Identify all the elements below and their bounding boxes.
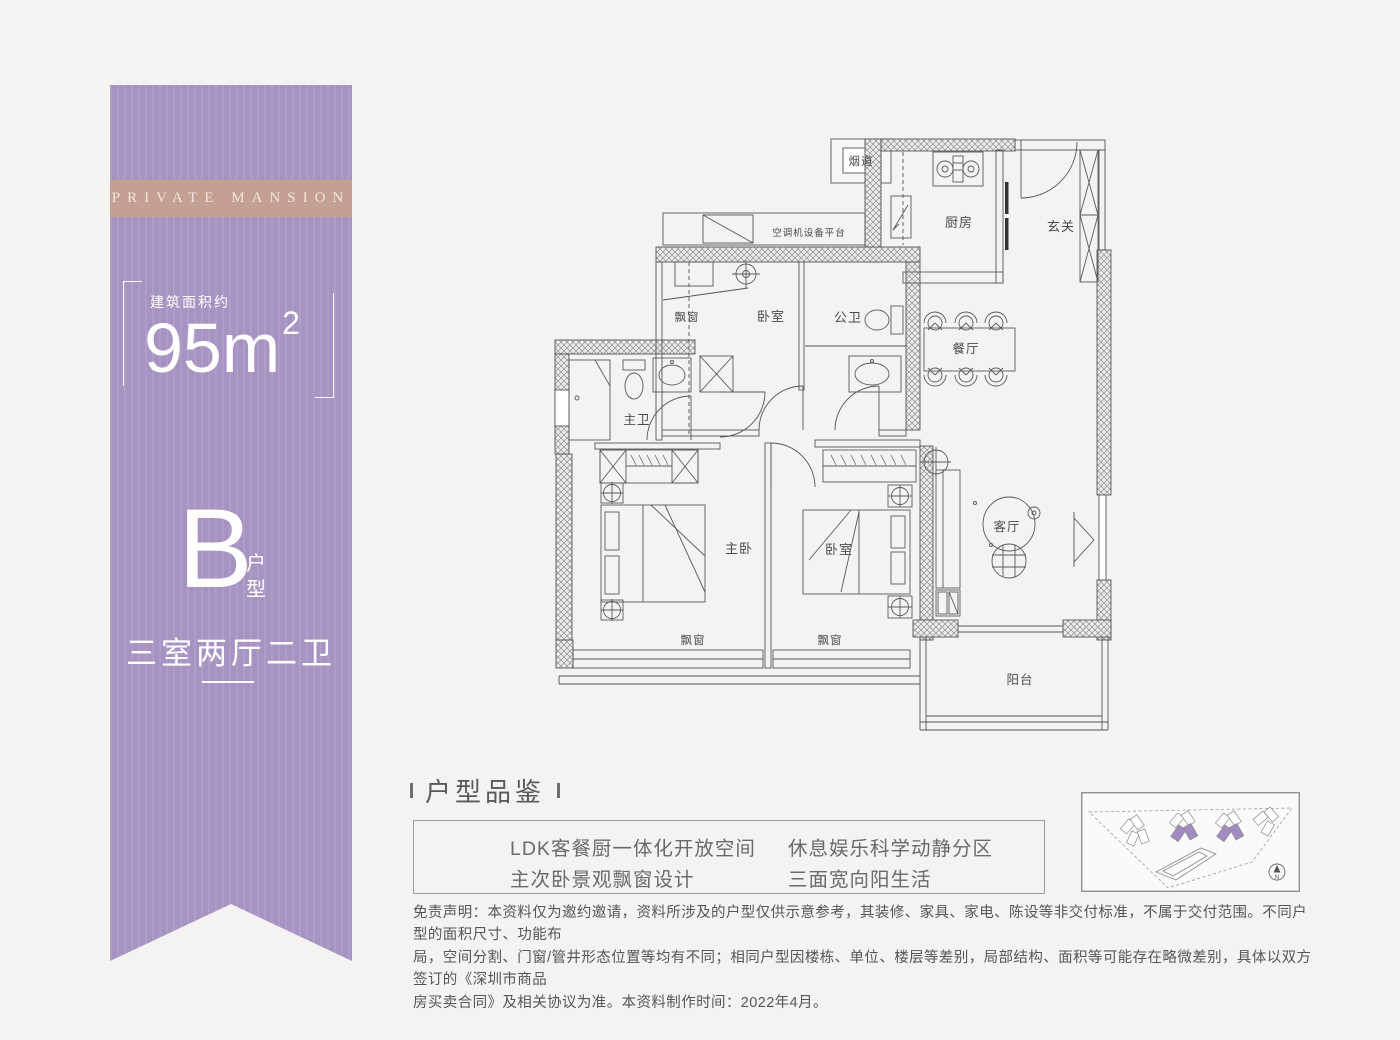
nightstand-icon xyxy=(888,596,912,618)
disclaimer-line-2: 局，空间分割、门窗/管井形态位置等均有不同；相同户型因楼栋、单位、楼层等差别，局… xyxy=(413,947,1318,992)
bay-window-bands xyxy=(559,650,920,684)
toilet2-icon xyxy=(623,360,645,399)
label-bedroom-upper: 卧室 xyxy=(757,309,785,324)
poster: PRIVATE MANSION 建筑面积约 95m2 B 户 型 三室两厅二卫 xyxy=(0,0,1400,1040)
north-label: N xyxy=(1275,875,1279,881)
label-guest-bath: 公卫 xyxy=(834,310,862,325)
label-ac-platform: 空调机设备平台 xyxy=(772,227,846,239)
bedroom2-door xyxy=(771,443,815,487)
window-casement-icon xyxy=(1074,512,1094,567)
unit-type-letter: B xyxy=(178,493,253,605)
label-bay-upper: 飘窗 xyxy=(675,310,700,324)
closet-icon xyxy=(700,356,733,392)
tv-cabinet-icon xyxy=(936,470,960,616)
feature-2: 休息娱乐科学动静分区 xyxy=(788,832,993,861)
bedroom2-wardrobe-icon xyxy=(823,450,916,482)
bracket-topleft-icon xyxy=(123,281,142,386)
nightstand-icon xyxy=(888,485,912,507)
title-tick-left xyxy=(410,783,413,798)
floorplan-drawing: 烟道 空调机设备平台 厨房 玄关 飘窗 卧室 公卫 餐厅 主卫 主卧 卧室 客厅… xyxy=(530,85,1195,750)
label-foyer: 玄关 xyxy=(1047,219,1075,234)
section-header: 户型品鉴 xyxy=(410,772,560,809)
disclaimer-line-3: 房买卖合同》及相关协议为准。本资料制作时间：2022年4月。 xyxy=(413,992,1318,1014)
brand-text: PRIVATE MANSION xyxy=(112,190,351,207)
area-value: 95m2 xyxy=(144,307,300,383)
banner-divider xyxy=(202,681,254,683)
kitchen-sink-icon xyxy=(891,196,911,238)
basin2-icon xyxy=(653,358,691,392)
label-master-bath: 主卫 xyxy=(623,413,650,427)
area-superscript: 2 xyxy=(282,305,300,341)
foyer-wardrobe-icon xyxy=(1080,150,1098,282)
shower-icon xyxy=(569,360,610,440)
title-tick-right xyxy=(557,783,560,798)
label-kitchen: 厨房 xyxy=(945,215,973,230)
toilet-icon xyxy=(865,306,903,334)
entry-door xyxy=(1021,140,1077,198)
bracket-bottomright-icon xyxy=(315,293,334,398)
label-balcony: 阳台 xyxy=(1006,672,1033,687)
disclaimer-line-1: 免责声明：本资料仅为邀约邀请，资料所涉及的户型仅供示意参考，其装修、家具、家电、… xyxy=(413,902,1318,947)
feature-3: 主次卧景观飘窗设计 xyxy=(510,863,695,892)
room-count-text: 三室两厅二卫 xyxy=(110,628,352,673)
unit-type-char2: 型 xyxy=(246,577,266,603)
label-bedroom2: 卧室 xyxy=(825,542,853,557)
nightstand-icon xyxy=(601,482,623,504)
master-bath-door xyxy=(647,396,691,440)
stove-icon xyxy=(933,152,983,186)
label-flue: 烟道 xyxy=(849,154,874,168)
master-wardrobe-icon xyxy=(600,450,698,483)
features-box: LDK客餐厨一体化开放空间 休息娱乐科学动静分区 主次卧景观飘窗设计 三面宽向阳… xyxy=(413,820,1045,894)
chairs-top xyxy=(924,312,1007,330)
bedroom-upper-door xyxy=(759,386,803,430)
site-map: N xyxy=(1081,792,1300,892)
label-bay-bedroom2: 飘窗 xyxy=(818,633,843,647)
label-dining: 餐厅 xyxy=(952,341,979,356)
bedroom2-bed-icon xyxy=(803,510,910,594)
feature-4: 三面宽向阳生活 xyxy=(788,863,932,892)
guest-bath-door xyxy=(835,386,879,430)
bay-seat xyxy=(675,262,713,286)
ribbon-banner: PRIVATE MANSION 建筑面积约 95m2 B 户 型 三室两厅二卫 xyxy=(110,85,352,961)
feature-1: LDK客餐厨一体化开放空间 xyxy=(510,832,756,861)
label-master-bedroom: 主卧 xyxy=(725,541,753,556)
brand-band: PRIVATE MANSION xyxy=(110,180,352,217)
master-bed-icon xyxy=(601,505,705,602)
label-living: 客厅 xyxy=(993,519,1020,534)
unit-type-word: 户 型 xyxy=(246,551,266,603)
unit-type-char1: 户 xyxy=(246,551,266,577)
ceiling-fan-icon xyxy=(732,260,760,288)
label-bay-master: 飘窗 xyxy=(681,633,706,647)
disclaimer: 免责声明：本资料仅为邀约邀请，资料所涉及的户型仅供示意参考，其装修、家具、家电、… xyxy=(413,902,1318,1014)
section-title: 户型品鉴 xyxy=(425,772,545,809)
living-table-icon xyxy=(974,497,1041,578)
